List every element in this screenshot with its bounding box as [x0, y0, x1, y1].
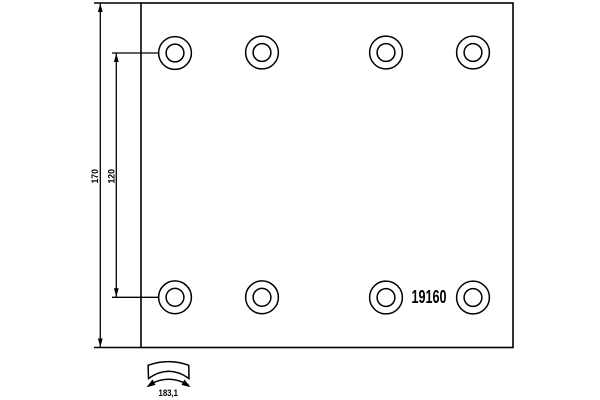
svg-text:170: 170: [90, 169, 101, 183]
svg-text:19160: 19160: [412, 288, 447, 308]
svg-text:120: 120: [106, 169, 117, 183]
svg-text:183,1: 183,1: [159, 387, 179, 398]
